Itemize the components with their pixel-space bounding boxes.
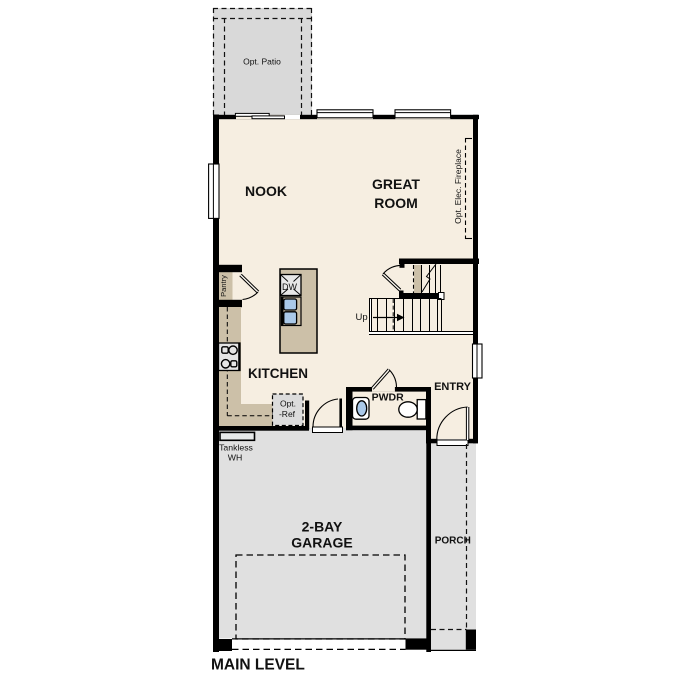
svg-text:PORCH: PORCH [435, 536, 471, 547]
svg-text:Up: Up [356, 312, 368, 323]
svg-text:Pantry: Pantry [219, 275, 228, 297]
svg-text:KITCHEN: KITCHEN [248, 366, 308, 381]
svg-text:DW: DW [282, 282, 297, 292]
svg-text:NOOK: NOOK [245, 183, 287, 199]
svg-text:GREAT: GREAT [372, 176, 420, 192]
svg-text:ENTRY: ENTRY [434, 381, 472, 393]
svg-text:2-BAY: 2-BAY [302, 519, 343, 535]
svg-text:ROOM: ROOM [374, 195, 418, 211]
svg-text:WH: WH [228, 453, 242, 463]
svg-text:Opt. Elec. Fireplace: Opt. Elec. Fireplace [453, 149, 463, 224]
svg-text:PWDR: PWDR [372, 392, 404, 404]
svg-text:Tankless: Tankless [219, 443, 253, 453]
svg-text:-Ref: -Ref [279, 409, 296, 419]
svg-text:GARAGE: GARAGE [291, 535, 352, 551]
svg-text:Opt. Patio: Opt. Patio [243, 57, 281, 67]
svg-text:Opt.: Opt. [280, 399, 296, 409]
svg-text:MAIN LEVEL: MAIN LEVEL [211, 657, 305, 674]
